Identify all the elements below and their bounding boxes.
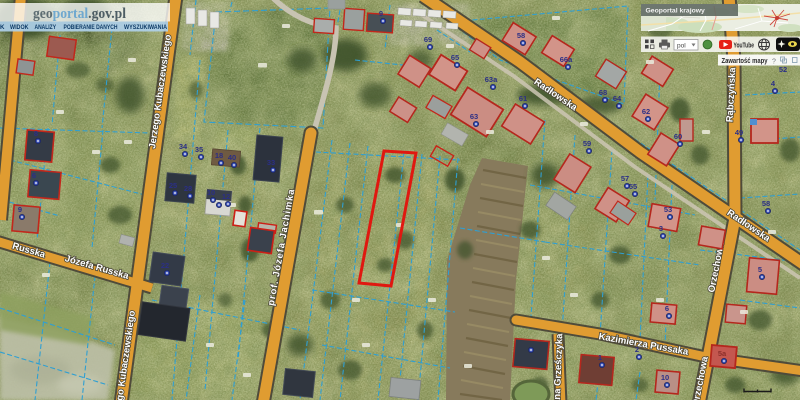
svg-text:9: 9 <box>379 9 383 18</box>
svg-text:25: 25 <box>169 181 177 190</box>
svg-text:66a: 66a <box>560 55 573 64</box>
svg-text:6: 6 <box>665 304 669 313</box>
svg-text:ANALIZY: ANALIZY <box>35 24 57 31</box>
svg-text:Geoportal krajowy: Geoportal krajowy <box>646 8 706 15</box>
svg-text:POBIERANIE DANYCH: POBIERANIE DANYCH <box>64 24 118 31</box>
svg-text:60: 60 <box>674 132 682 141</box>
svg-text:61: 61 <box>519 94 527 103</box>
svg-text:3: 3 <box>659 224 663 233</box>
svg-text:WYSZUKIWANIA: WYSZUKIWANIA <box>124 24 167 31</box>
svg-text:5: 5 <box>758 265 762 274</box>
svg-text:69: 69 <box>424 35 432 44</box>
svg-text:34: 34 <box>179 142 188 151</box>
svg-text:68: 68 <box>599 88 607 97</box>
svg-text:40: 40 <box>228 153 236 162</box>
svg-text:63a: 63a <box>485 75 498 84</box>
svg-text:59: 59 <box>583 139 591 148</box>
svg-text:1: 1 <box>598 353 602 362</box>
svg-text:49: 49 <box>735 128 743 137</box>
svg-text:K: K <box>0 24 5 31</box>
svg-text:58: 58 <box>762 199 770 208</box>
svg-text:22: 22 <box>161 261 169 270</box>
svg-text:62: 62 <box>642 107 650 116</box>
svg-text:33: 33 <box>267 158 275 167</box>
svg-text:geoportal.gov.pl: geoportal.gov.pl <box>33 6 126 22</box>
svg-text:55: 55 <box>629 182 637 191</box>
svg-text:Jana Grześczyka: Jana Grześczyka <box>552 333 566 400</box>
svg-text:5a: 5a <box>718 349 727 358</box>
svg-text:6: 6 <box>32 171 36 180</box>
svg-text:18: 18 <box>215 151 223 160</box>
svg-text:?: ? <box>772 59 776 66</box>
svg-text:10: 10 <box>207 188 215 197</box>
svg-text:12: 12 <box>222 192 230 201</box>
svg-text:58: 58 <box>517 31 525 40</box>
svg-text:WIDOK: WIDOK <box>10 24 29 31</box>
svg-text:63: 63 <box>470 112 478 121</box>
svg-text:10: 10 <box>661 373 669 382</box>
svg-text:Zawartość mapy: Zawartość mapy <box>722 56 769 65</box>
svg-text:YouTube: YouTube <box>734 41 755 50</box>
svg-text:35: 35 <box>195 145 203 154</box>
svg-text:52: 52 <box>779 65 787 74</box>
svg-text:8: 8 <box>34 129 38 138</box>
svg-text:28: 28 <box>184 184 192 193</box>
svg-text:9: 9 <box>18 205 22 214</box>
svg-text:pol: pol <box>677 43 686 50</box>
svg-text:65: 65 <box>451 53 459 62</box>
svg-text:2: 2 <box>635 345 639 354</box>
svg-text:64: 64 <box>613 94 622 103</box>
svg-text:53: 53 <box>664 205 672 214</box>
